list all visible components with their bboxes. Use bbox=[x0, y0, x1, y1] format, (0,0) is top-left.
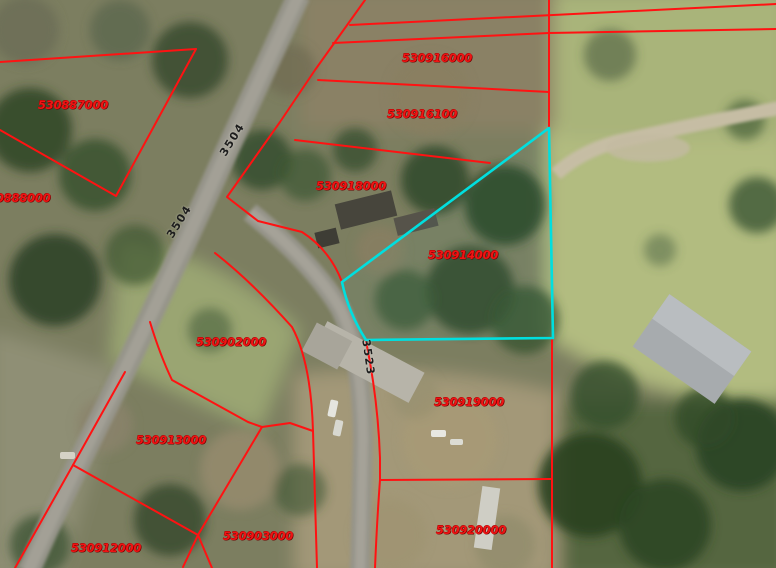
parcel-label-530919000: 530919000 bbox=[434, 395, 504, 409]
parcel-label-530902000: 530902000 bbox=[196, 335, 266, 349]
map-layers bbox=[0, 0, 776, 568]
parcel-label-530903000: 530903000 bbox=[223, 529, 293, 543]
parcel-label-530914000: 530914000 bbox=[428, 248, 498, 262]
vehicle bbox=[450, 439, 463, 445]
aerial-map-canvas[interactable]: 530887000 0888000 530916000 530916100 53… bbox=[0, 0, 776, 568]
parcel-label-530920000: 530920000 bbox=[436, 523, 506, 537]
parcel-label-530916100: 530916100 bbox=[387, 107, 457, 121]
vehicle bbox=[60, 452, 75, 459]
parcel-label-530916000: 530916000 bbox=[402, 51, 472, 65]
parcel-label-530887000: 530887000 bbox=[38, 98, 108, 112]
parcel-label-530913000: 530913000 bbox=[136, 433, 206, 447]
parcel-label-530888000: 0888000 bbox=[0, 191, 51, 205]
parcel-label-530912000: 530912000 bbox=[71, 541, 141, 555]
vehicle bbox=[431, 430, 446, 437]
parcel-label-530918000: 530918000 bbox=[316, 179, 386, 193]
